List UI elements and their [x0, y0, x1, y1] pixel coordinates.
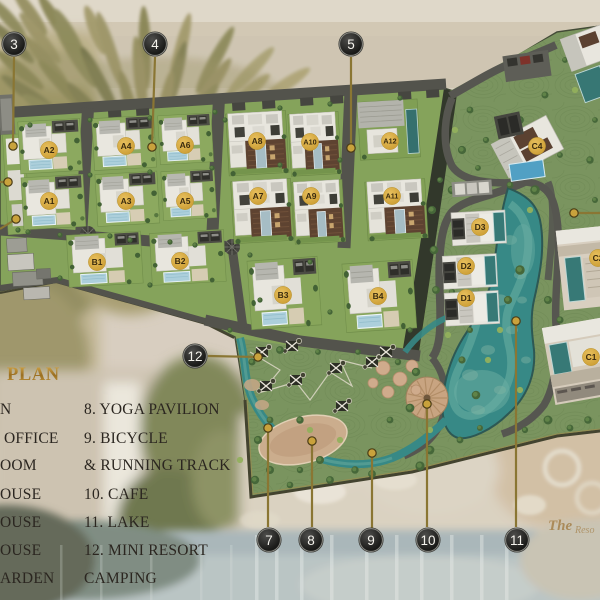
- svg-text:10: 10: [420, 533, 435, 548]
- svg-text:OOM: OOM: [0, 457, 37, 474]
- svg-text:& RUNNING TRACK: & RUNNING TRACK: [84, 457, 231, 474]
- svg-text:OUSE: OUSE: [0, 542, 41, 559]
- svg-text:N: N: [0, 401, 11, 418]
- svg-text:ARDEN: ARDEN: [0, 570, 54, 587]
- svg-text:B1: B1: [92, 257, 103, 267]
- svg-text:11. LAKE: 11. LAKE: [84, 514, 150, 531]
- svg-text:PLAN: PLAN: [7, 365, 60, 385]
- svg-text:A8: A8: [252, 136, 263, 146]
- svg-text:Reso: Reso: [574, 525, 594, 536]
- svg-text:OUSE: OUSE: [0, 514, 41, 531]
- svg-text:10. CAFE: 10. CAFE: [84, 486, 148, 503]
- svg-text:3: 3: [10, 37, 18, 52]
- svg-text:A2: A2: [44, 145, 55, 155]
- svg-text:12. MINI RESORT: 12. MINI RESORT: [84, 542, 208, 559]
- svg-text:CAMPING: CAMPING: [84, 570, 157, 587]
- svg-text:A9: A9: [306, 191, 317, 201]
- svg-text:C1: C1: [586, 352, 597, 362]
- svg-text:D1: D1: [461, 293, 472, 303]
- svg-text:A11: A11: [386, 192, 399, 201]
- svg-text:A4: A4: [121, 141, 132, 151]
- svg-text:5: 5: [347, 37, 355, 52]
- svg-text:OUSE: OUSE: [0, 486, 41, 503]
- svg-text:D2: D2: [461, 261, 472, 271]
- svg-text:A5: A5: [180, 196, 191, 206]
- svg-text:12: 12: [187, 349, 202, 364]
- svg-text:C4: C4: [532, 141, 543, 151]
- svg-text:9: 9: [367, 533, 375, 548]
- svg-text:OFFICE: OFFICE: [4, 430, 59, 447]
- svg-text:B2: B2: [175, 256, 186, 266]
- svg-text:8. YOGA PAVILION: 8. YOGA PAVILION: [84, 401, 220, 418]
- svg-text:4: 4: [151, 37, 159, 52]
- svg-text:9. BICYCLE: 9. BICYCLE: [84, 430, 168, 447]
- svg-text:B3: B3: [278, 290, 289, 300]
- svg-text:A6: A6: [180, 140, 191, 150]
- svg-text:A10: A10: [303, 138, 316, 147]
- svg-text:D3: D3: [475, 222, 486, 232]
- svg-text:C2: C2: [593, 253, 600, 263]
- svg-text:A12: A12: [383, 137, 396, 146]
- svg-text:B4: B4: [373, 291, 384, 301]
- svg-text:8: 8: [307, 533, 315, 548]
- svg-text:11: 11: [510, 533, 524, 548]
- svg-text:A7: A7: [253, 191, 264, 201]
- svg-text:7: 7: [265, 533, 273, 548]
- svg-text:The: The: [548, 518, 573, 534]
- svg-text:A3: A3: [121, 196, 132, 206]
- svg-text:A1: A1: [44, 196, 55, 206]
